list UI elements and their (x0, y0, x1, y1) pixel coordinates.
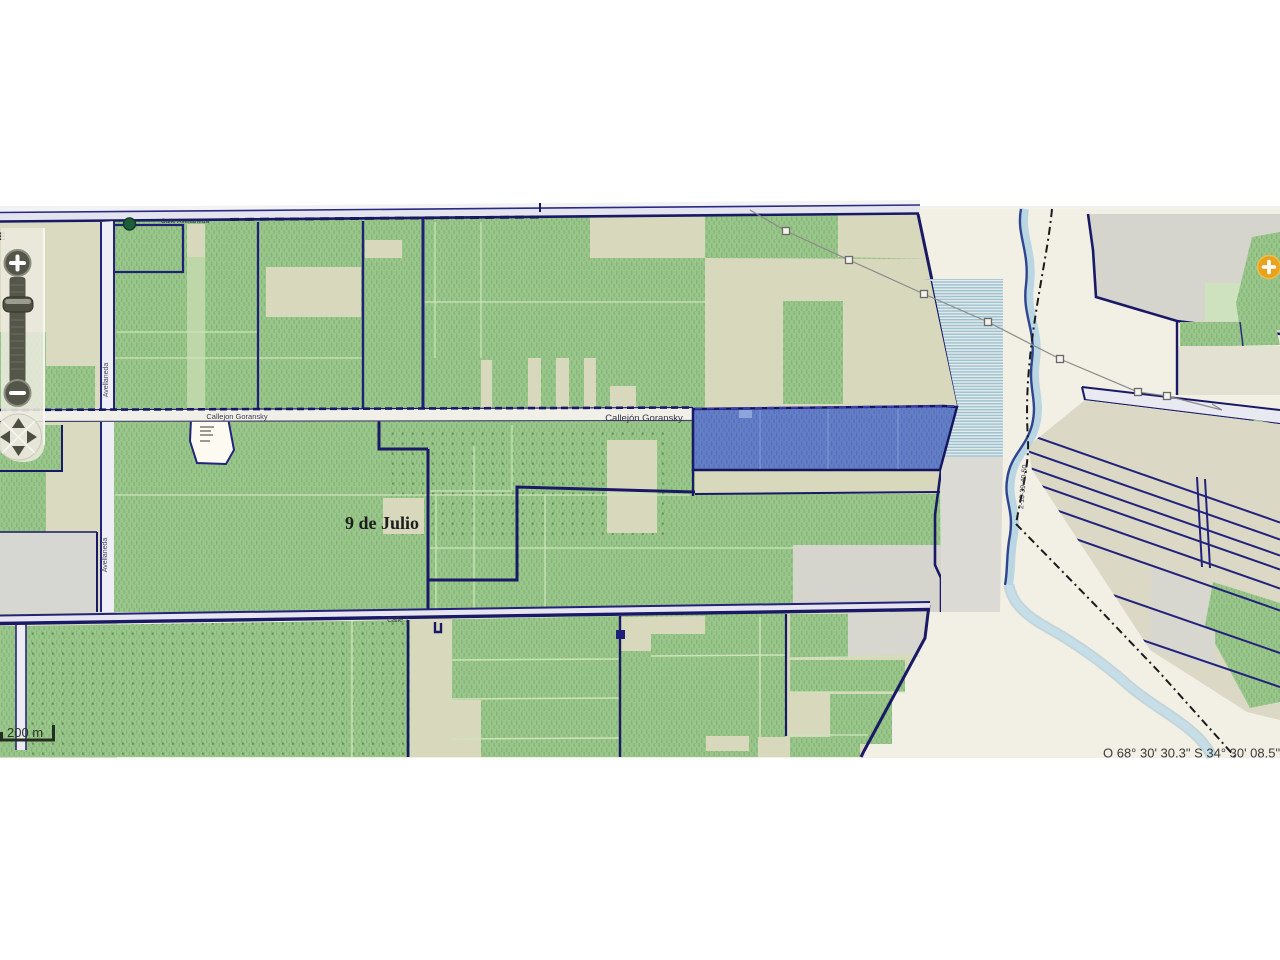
svg-text:Calle Avellaneda: Calle Avellaneda (161, 218, 210, 225)
svg-text:Avellaneda: Avellaneda (103, 363, 110, 398)
svg-text:200 m: 200 m (7, 725, 43, 740)
svg-text:Avellaneda: Avellaneda (102, 538, 109, 573)
svg-text:Callejón Goransky: Callejón Goransky (605, 413, 683, 424)
svg-text:9 de Julio: 9 de Julio (345, 513, 419, 533)
svg-text:Callejon Goransky: Callejon Goransky (206, 412, 268, 421)
svg-text:Calle 7: Calle 7 (387, 617, 409, 624)
